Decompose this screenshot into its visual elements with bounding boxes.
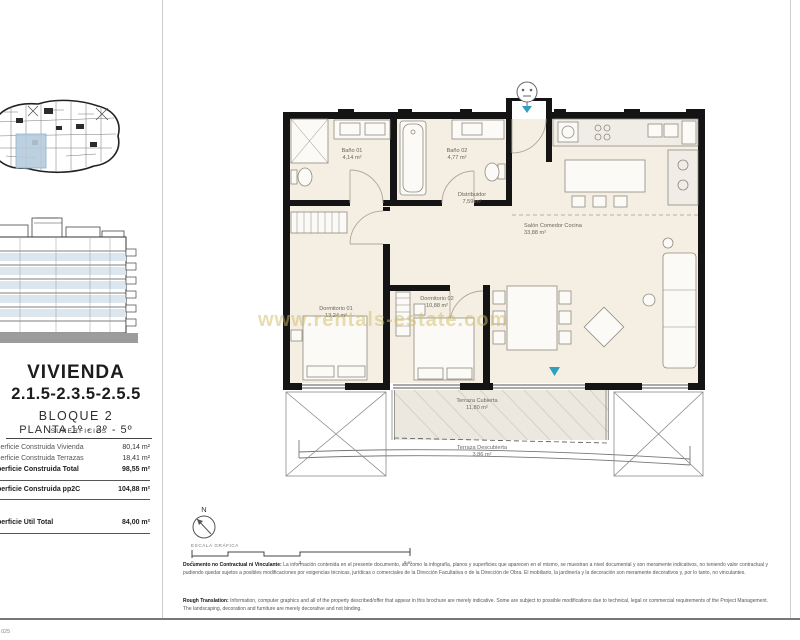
floorplan-sheet: VIVIENDA 2.1.5-2.3.5-2.5.5 BLOQUE 2 PLAN…	[0, 0, 800, 640]
room-label: Baño 01	[342, 148, 363, 154]
room-area: 7,59 m²	[463, 199, 482, 205]
room-area: 4,14 m²	[343, 155, 362, 161]
entrance-marker	[517, 82, 537, 113]
room-label: Terraza Descubierta	[457, 445, 508, 451]
north-label: N	[201, 505, 206, 514]
room-area: 3,86 m²	[473, 452, 492, 458]
watermark: www.rentals-estate.com	[258, 309, 558, 332]
structural-bay-left	[286, 392, 386, 476]
graphic-scale: ESCALA GRÁFICA 0 3 6 m	[191, 542, 412, 565]
scale-tick: 3	[299, 560, 302, 565]
north-compass: N	[193, 505, 215, 538]
scale-label: ESCALA GRÁFICA	[191, 542, 239, 548]
room-area: 11,80 m²	[466, 405, 488, 411]
scale-tick: 0	[191, 560, 194, 565]
room-label: Distribuidor	[458, 192, 486, 198]
room-area: 33,88 m²	[524, 230, 546, 236]
room-label: Terraza Cubierta	[456, 398, 498, 404]
scale-tick: 6 m	[404, 560, 412, 565]
room-label: Baño 02	[447, 148, 468, 154]
room-label: Dormitorio 02	[420, 296, 454, 302]
terrace-covered	[392, 390, 609, 443]
room-area: 4,77 m²	[448, 155, 467, 161]
room-label: Salón Comedor Cocina	[524, 223, 583, 229]
entrance-arrow-icon	[522, 106, 532, 113]
